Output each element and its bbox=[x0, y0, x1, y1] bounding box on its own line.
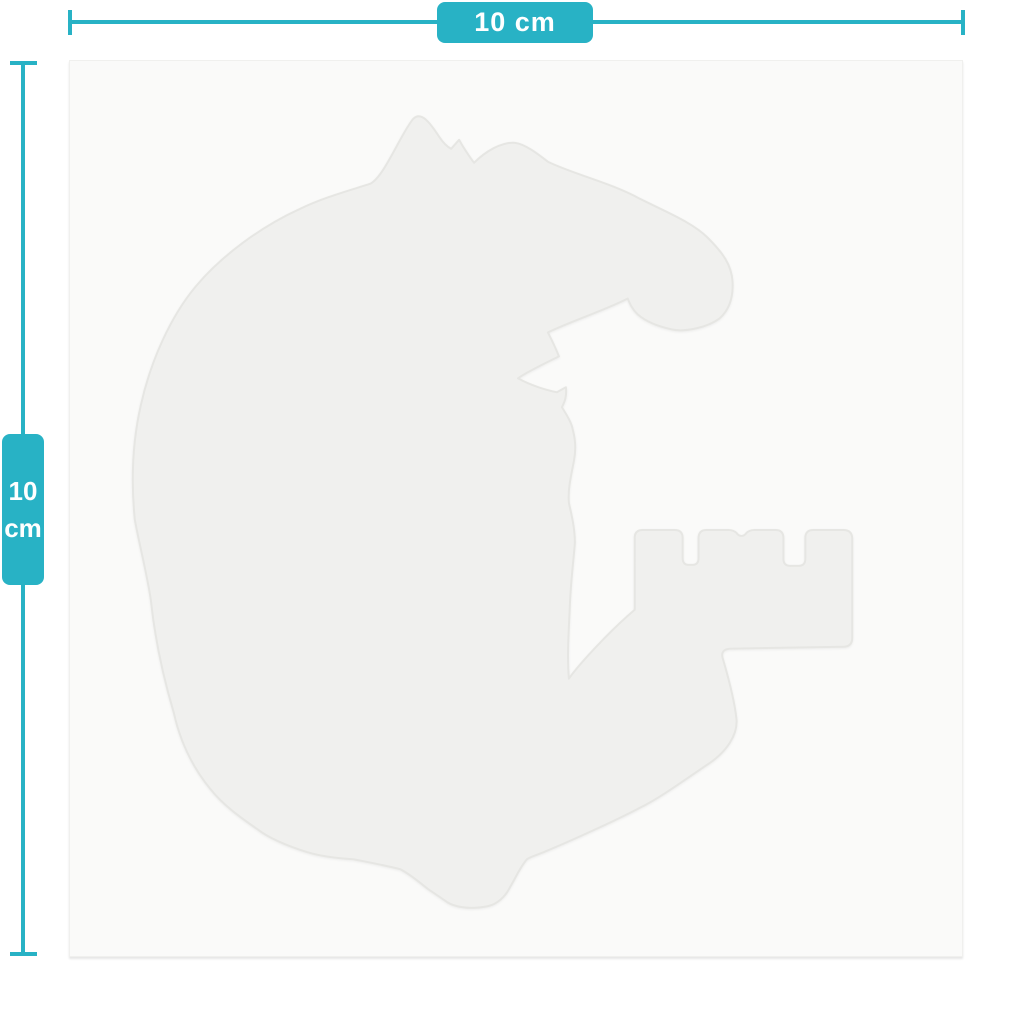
horizontal-dimension-endcap-right bbox=[961, 10, 965, 35]
vertical-dimension-unit: cm bbox=[4, 510, 42, 547]
product-card bbox=[69, 60, 963, 957]
die-cut-sticker-silhouette bbox=[70, 61, 962, 956]
horizontal-dimension-endcap-left bbox=[68, 10, 72, 35]
vertical-dimension-endcap-bottom bbox=[10, 952, 37, 956]
horizontal-dimension-label: 10 cm bbox=[437, 2, 593, 43]
vertical-dimension-label: 10 cm bbox=[2, 434, 44, 585]
vertical-dimension-value: 10 bbox=[9, 473, 38, 510]
sticker-outline-path bbox=[133, 116, 852, 907]
vertical-dimension-endcap-top bbox=[10, 61, 37, 65]
product-size-diagram: 10 cm 10 cm bbox=[0, 0, 1024, 1024]
